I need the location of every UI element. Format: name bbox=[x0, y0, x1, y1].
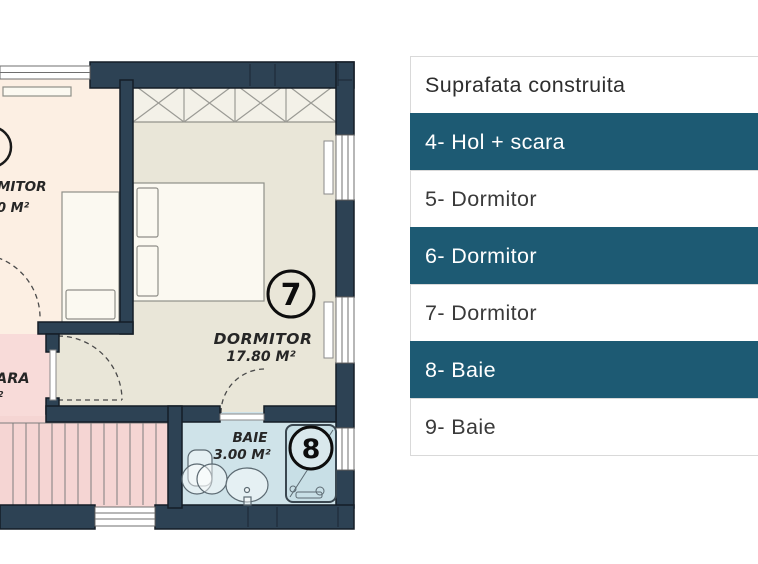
bedroom-area-label: 17.80 M² bbox=[226, 349, 296, 365]
left-room-shelf bbox=[3, 87, 71, 96]
legend-row-baie-8: 8- Baie bbox=[410, 341, 758, 399]
radiator-2 bbox=[324, 302, 333, 358]
legend-header: Suprafata construita bbox=[410, 56, 758, 114]
legend-row-hol-scara: 4- Hol + scara bbox=[410, 113, 758, 171]
bedroom-pillow-bottom bbox=[137, 246, 158, 296]
hall-door-stub-top bbox=[46, 334, 59, 352]
bedroom-door-leaf bbox=[50, 350, 56, 400]
legend-row-dormitor-5: 5- Dormitor bbox=[410, 170, 758, 228]
right-window-2 bbox=[336, 297, 354, 363]
stairs-area-label-partial: 2 bbox=[0, 390, 4, 399]
right-wall-seg4 bbox=[336, 470, 354, 508]
divider-wall bbox=[120, 80, 133, 334]
left-room-pillow bbox=[66, 290, 115, 319]
legend-row-label: 6- Dormitor bbox=[425, 244, 537, 269]
bedroom-number: 7 bbox=[281, 278, 302, 313]
left-room-name-label-partial: MITOR bbox=[0, 179, 47, 195]
legend-panel: Suprafata construita 4- Hol + scara 5- D… bbox=[410, 57, 758, 456]
legend-row-dormitor-6: 6- Dormitor bbox=[410, 227, 758, 285]
bathroom-left-wall bbox=[168, 406, 182, 508]
right-window-3 bbox=[336, 428, 354, 470]
legend-row-dormitor-7: 7- Dormitor bbox=[410, 284, 758, 342]
bedroom-name-label: DORMITOR bbox=[214, 330, 313, 348]
legend-row-label: 9- Baie bbox=[425, 415, 496, 440]
radiator-1 bbox=[324, 141, 333, 194]
bottom-wall-right bbox=[155, 505, 354, 529]
bottom-wall-left bbox=[0, 505, 95, 529]
left-room-hall-wall bbox=[38, 322, 133, 334]
washbasin-tap bbox=[244, 497, 251, 505]
legend-row-label: 4- Hol + scara bbox=[425, 130, 565, 155]
floor-plan: 7 8 DORMITOR 17.80 M² BAIE 3.00 M² MITOR… bbox=[0, 0, 390, 564]
bottom-window bbox=[95, 507, 155, 526]
bedroom-pillow-top bbox=[137, 188, 158, 237]
bathroom-door-leaf bbox=[220, 414, 264, 420]
stairs-name-label-partial: ARA bbox=[0, 371, 30, 387]
right-wall-seg3 bbox=[336, 363, 354, 428]
bathroom-area-label: 3.00 M² bbox=[213, 447, 270, 463]
bathroom-name-label: BAIE bbox=[233, 430, 269, 446]
legend-row-label: 7- Dormitor bbox=[425, 301, 537, 326]
bidet-bowl bbox=[197, 464, 227, 494]
legend-header-label: Suprafata construita bbox=[425, 73, 625, 98]
right-wall-seg2 bbox=[336, 200, 354, 297]
bathroom-number: 8 bbox=[302, 434, 321, 465]
left-room-area-label-partial: 0 M² bbox=[0, 201, 30, 216]
wardrobe bbox=[133, 84, 336, 122]
bathroom-top-wall-left bbox=[46, 406, 220, 422]
bathroom-top-wall-right bbox=[264, 406, 336, 422]
right-wall-seg1 bbox=[336, 62, 354, 135]
right-window-1 bbox=[336, 135, 354, 200]
washbasin-drain bbox=[245, 488, 250, 493]
legend-row-label: 5- Dormitor bbox=[425, 187, 537, 212]
legend-row-label: 8- Baie bbox=[425, 358, 496, 383]
legend-row-baie-9: 9- Baie bbox=[410, 398, 758, 456]
